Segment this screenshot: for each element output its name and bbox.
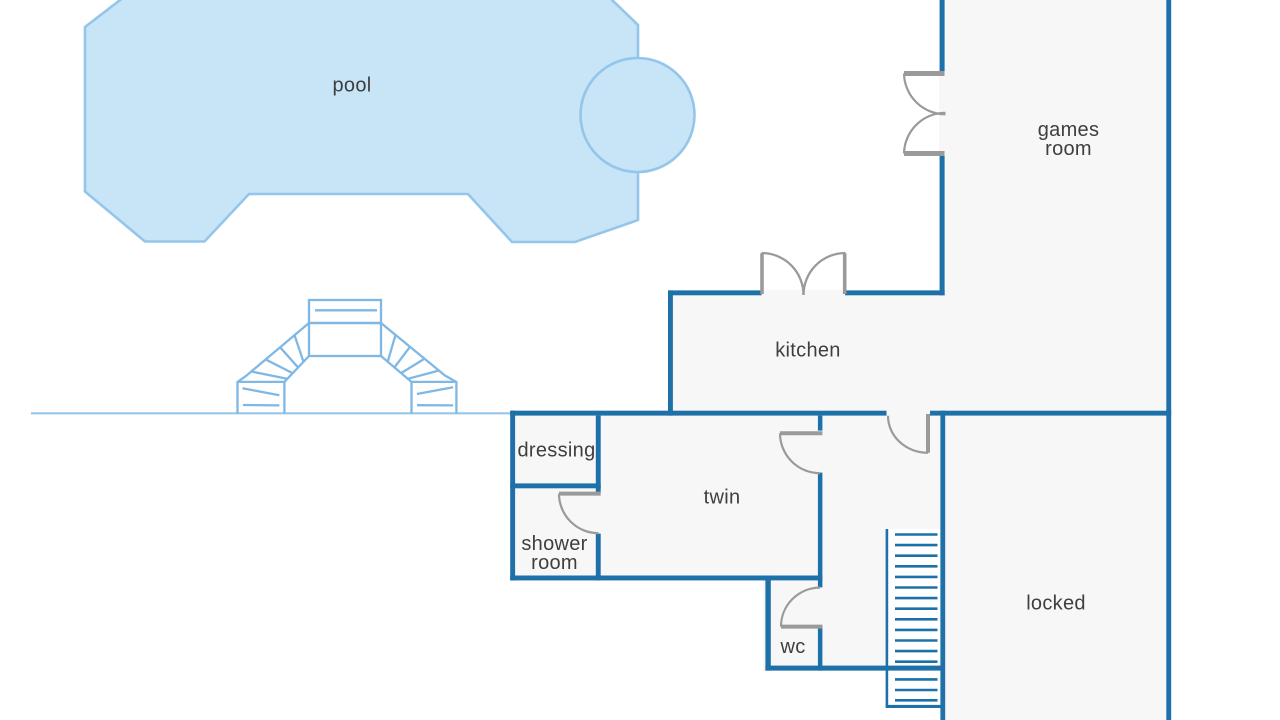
svg-text:wc: wc [779,636,805,658]
svg-text:kitchen: kitchen [775,340,840,362]
svg-text:dressing: dressing [518,440,596,462]
svg-text:room: room [1045,138,1092,160]
svg-text:pool: pool [332,75,371,97]
svg-text:room: room [531,552,578,574]
svg-text:twin: twin [704,487,741,509]
svg-text:locked: locked [1026,593,1086,615]
